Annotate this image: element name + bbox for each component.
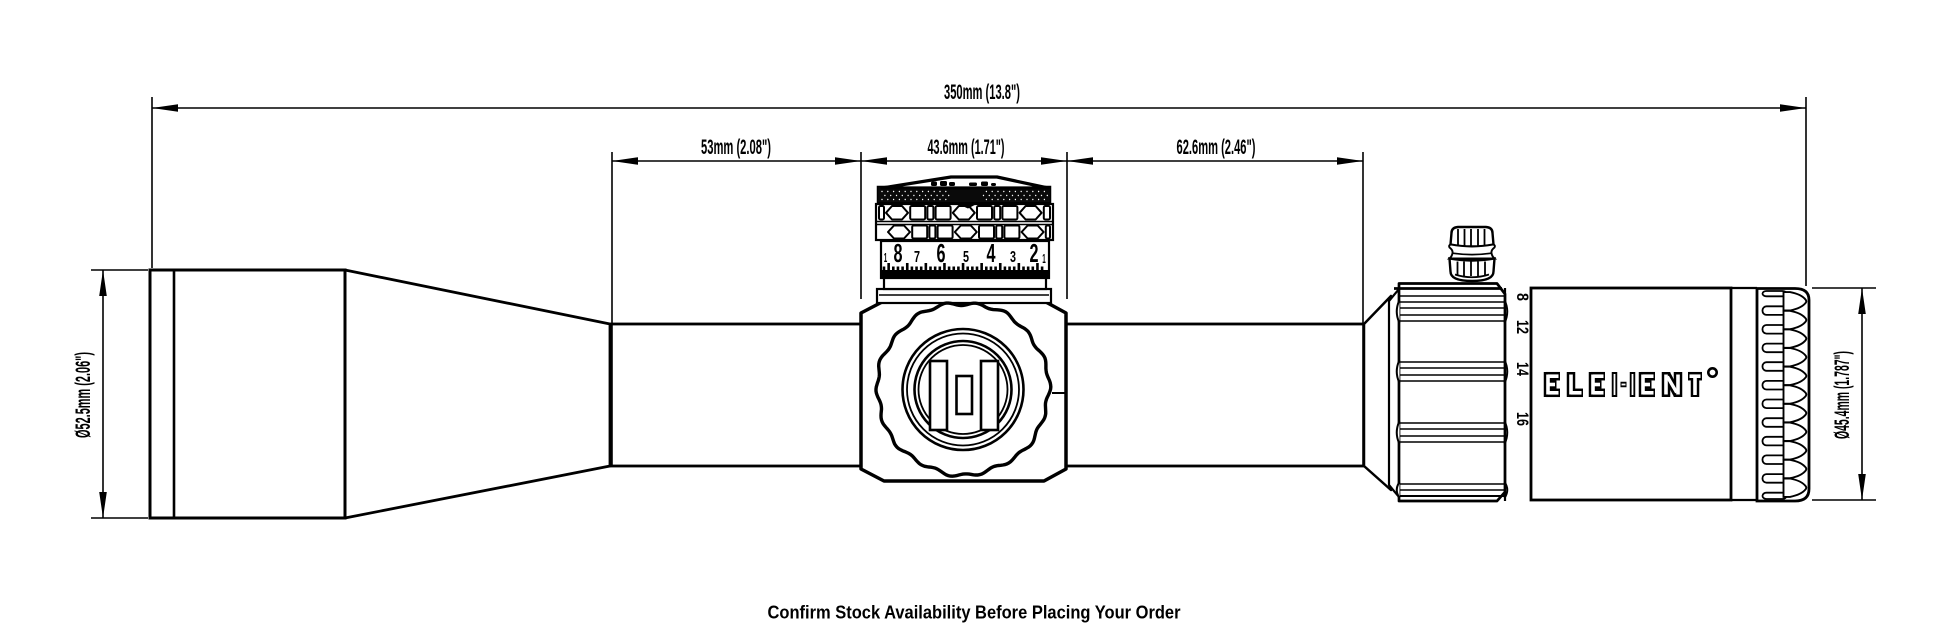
svg-text:1: 1 (1042, 251, 1046, 266)
svg-text:62.6mm (2.46"): 62.6mm (2.46") (1177, 136, 1256, 159)
svg-text:3: 3 (1010, 249, 1016, 266)
svg-text:8: 8 (1513, 293, 1532, 301)
svg-text:12: 12 (1513, 320, 1532, 334)
svg-text:350mm (13.8"): 350mm (13.8") (944, 81, 1020, 104)
svg-text:5: 5 (963, 249, 969, 266)
svg-text:14: 14 (1513, 362, 1532, 376)
svg-text:Confirm Stock Availability Bef: Confirm Stock Availability Before Placin… (768, 602, 1181, 623)
svg-text:6: 6 (937, 238, 946, 268)
svg-text:43.6mm (1.71"): 43.6mm (1.71") (928, 136, 1005, 159)
svg-text:Ø52.5mm (2.06"): Ø52.5mm (2.06") (72, 352, 95, 438)
svg-text:7: 7 (914, 249, 920, 266)
svg-text:16: 16 (1513, 412, 1532, 426)
svg-text:Ø45.4mm (1.787"): Ø45.4mm (1.787") (1831, 351, 1854, 439)
svg-text:8: 8 (894, 238, 903, 268)
svg-text:53mm (2.08"): 53mm (2.08") (701, 136, 771, 159)
svg-text:2: 2 (1030, 238, 1039, 268)
svg-text:4: 4 (987, 238, 996, 268)
svg-text:1: 1 (884, 250, 888, 265)
